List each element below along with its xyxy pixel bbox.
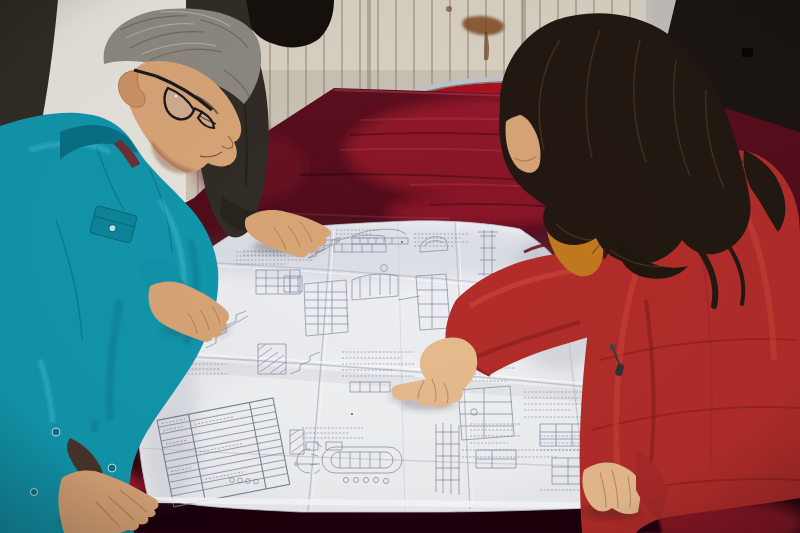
vignette [0, 0, 800, 533]
photo-canvas: Two workers lean over a large folded eng… [0, 0, 800, 533]
